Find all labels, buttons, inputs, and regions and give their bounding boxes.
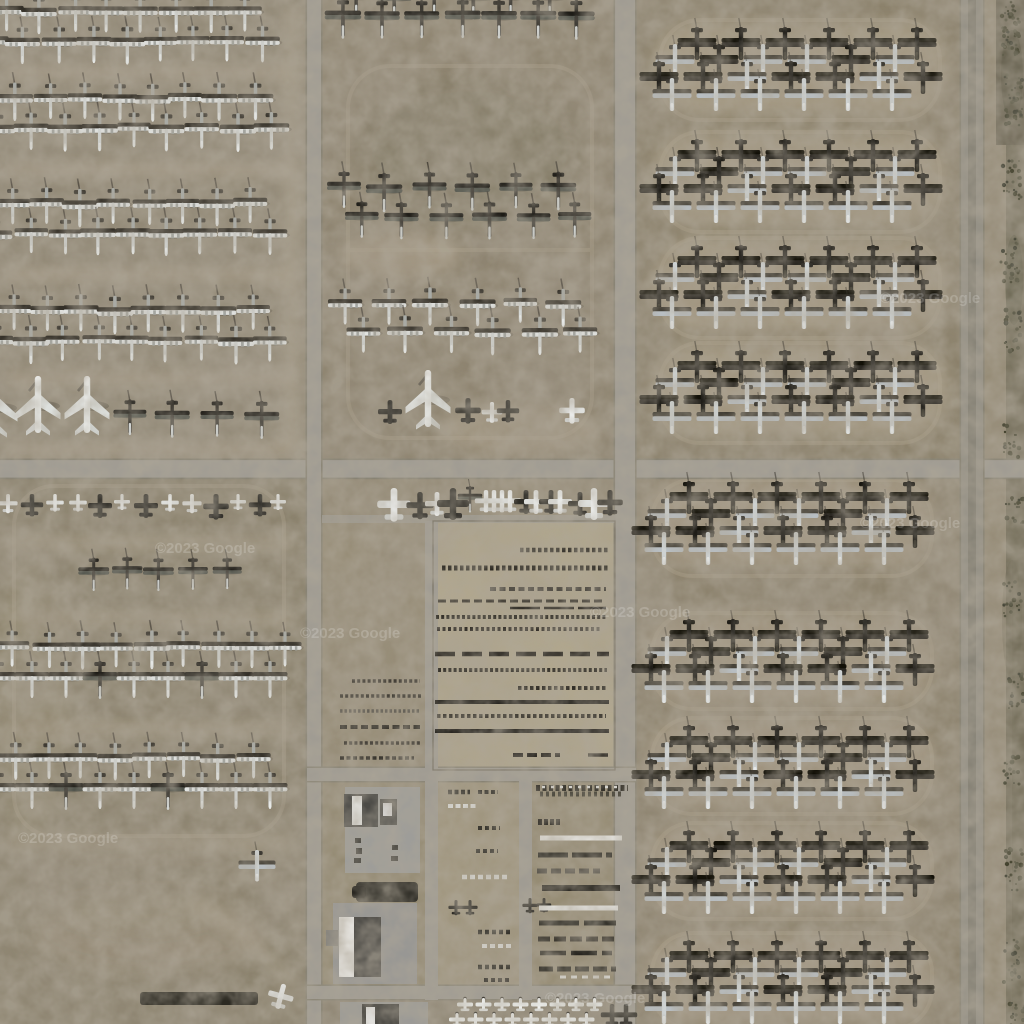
svg-text:©2023 Google: ©2023 Google [860, 515, 960, 532]
svg-text:©2023 Google: ©2023 Google [300, 625, 400, 642]
svg-text:©2023 Google: ©2023 Google [18, 830, 118, 847]
svg-text:©2023 Google: ©2023 Google [155, 540, 255, 557]
svg-text:©2023 Google: ©2023 Google [880, 290, 980, 307]
svg-text:©2023 Google: ©2023 Google [590, 604, 690, 621]
svg-text:©2023 Google: ©2023 Google [545, 990, 645, 1007]
